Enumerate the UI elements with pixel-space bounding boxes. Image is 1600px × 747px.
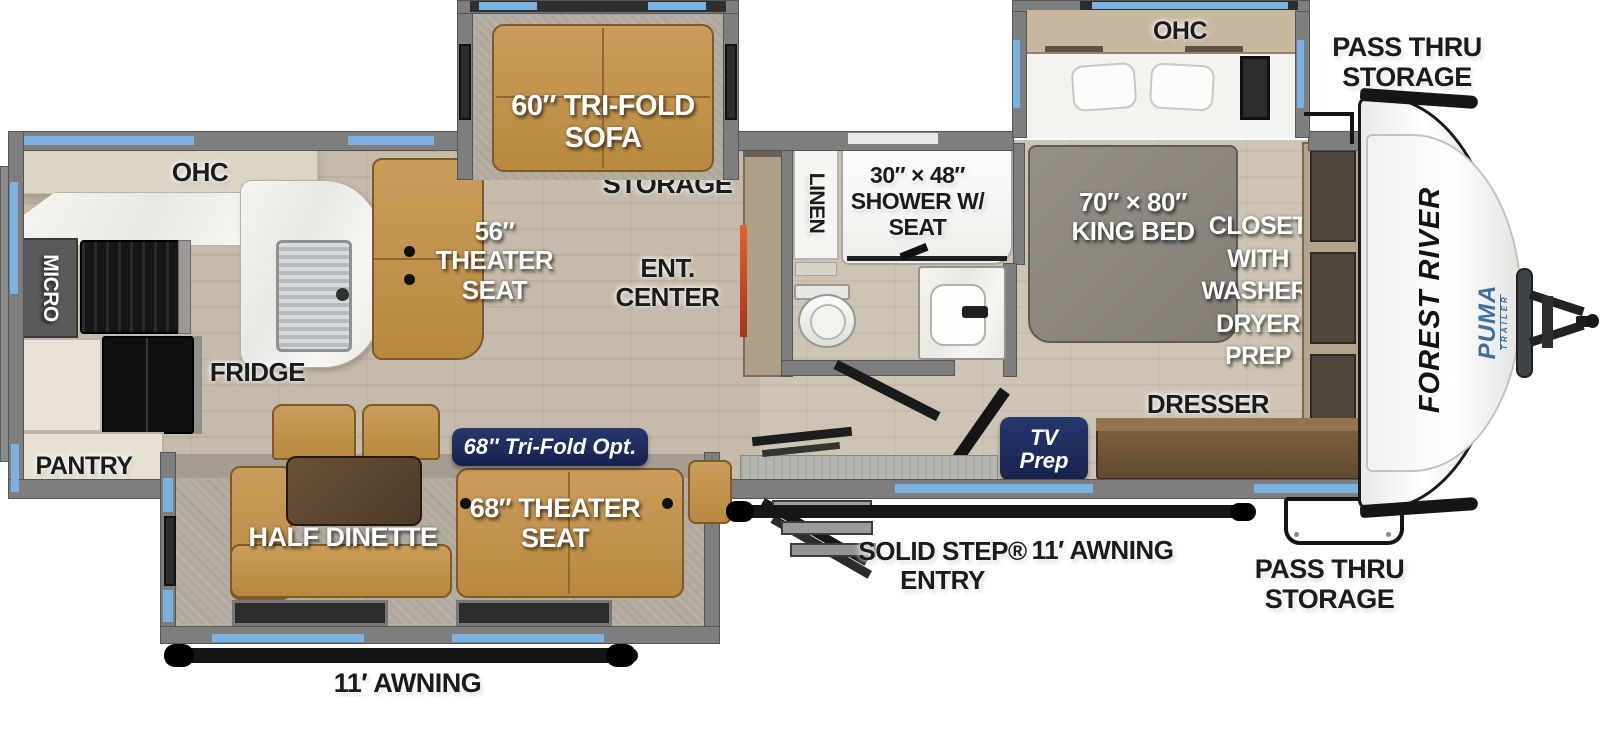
bed-slide-accent-right (1297, 40, 1304, 108)
linen-label: LINEN (802, 148, 830, 258)
dinette-accent-bottom-1 (212, 634, 364, 642)
dinette-accent-bottom-2 (452, 634, 604, 642)
closet-shelf-2 (1310, 252, 1356, 344)
sofa-slide-accent-1 (479, 2, 537, 10)
hitch-mount (1516, 268, 1533, 378)
awning-bottom-cap-left (164, 644, 194, 667)
closet-label: CLOSETWITHWASHER/DRYERPREP (1198, 204, 1318, 379)
wall-bottom-left (8, 479, 164, 499)
ent-center-label: ENT.CENTER (600, 250, 735, 316)
kitchen-cabinet-left (22, 338, 102, 432)
toilet-seat (810, 304, 846, 340)
theater-seat-56-cupholder-1 (404, 246, 415, 257)
bath-wall-left (781, 143, 793, 377)
bedroom-ohc-shelf-1 (1045, 46, 1103, 52)
theater-seat-56-label: 56″THEATERSEAT (432, 206, 557, 316)
dinette-window-bottom-1 (232, 600, 388, 626)
window-accent-bottom-1 (895, 484, 1093, 493)
sink-faucet-icon (336, 288, 349, 301)
rv-floorplan: MICRO OHC FRIDGE PANTRY 56″THEATERSEAT S… (0, 0, 1600, 747)
theater-seat-56-cupholder-2 (404, 274, 415, 285)
window-accent-top-2 (348, 136, 434, 145)
shower-glass (847, 256, 1007, 261)
window-accent-bottom-2 (1254, 484, 1364, 493)
tri-fold-sofa-label: 60″ TRI-FOLDSOFA (478, 86, 728, 158)
dresser-label: DRESSER (1118, 390, 1298, 420)
tv-prep-badge: TVPrep (1000, 417, 1088, 481)
fridge-icon (102, 336, 194, 434)
tri-fold-opt-badge: 68″ Tri-Fold Opt. (452, 428, 648, 466)
window-accent-rear (10, 182, 18, 294)
awning-right-label: 11′ AWNING (1030, 536, 1175, 566)
hitch-coupler-knob (1586, 314, 1599, 328)
solid-step-entry-label: SOLID STEP®ENTRY (860, 534, 1025, 598)
awning-right-cap-right (1230, 503, 1256, 521)
shower-label: 30″ × 48″SHOWER W/SEAT (830, 152, 1005, 252)
fridge-door-split (146, 338, 148, 432)
skylight (848, 133, 938, 144)
fireplace-icon (740, 225, 747, 337)
sofa-slide-accent-2 (648, 2, 706, 10)
bath-wall-right-upper (1013, 143, 1025, 265)
puma-sub-text: TRAILER (1500, 294, 1509, 350)
pass-thru-door-screw-2 (1386, 532, 1391, 537)
pass-thru-door-screw-1 (1294, 532, 1299, 537)
pillow-1 (1070, 62, 1137, 112)
bedroom-ohc-label: OHC (1115, 16, 1245, 46)
bed-slide-accent-left (1013, 40, 1020, 108)
bed-slide-accent-top (1092, 2, 1288, 9)
king-bed-label: 70″ × 80″KING BED (1058, 182, 1208, 252)
hitch-jack-post (1542, 296, 1553, 348)
awning-bottom-label: 11′ AWNING (330, 666, 485, 700)
awning-right-cap-left (726, 501, 754, 522)
bath-faucet-icon (962, 306, 988, 318)
sofa-slide-window-left (459, 44, 471, 120)
dinette-accent-left-2 (163, 590, 173, 622)
ent-center-cabinet (743, 145, 785, 377)
dinette-seat-back-1 (272, 404, 356, 460)
bedroom-ohc-shelf-2 (1185, 46, 1243, 52)
kitchen-ohc-label: OHC (150, 158, 250, 188)
closet-shelf-1 (1310, 150, 1356, 242)
stove-control-panel (178, 240, 191, 334)
puma-logo: PUMA TRAILER (1472, 252, 1512, 392)
awning-right-rod (732, 505, 1254, 518)
dinette-window-bottom-2 (456, 600, 612, 626)
dinette-table (286, 456, 422, 526)
slide-arm-v (1350, 112, 1354, 144)
bed-slide-window-right (1240, 56, 1270, 120)
bath-wall-bottom (781, 360, 955, 376)
slide-arm-h (1304, 112, 1354, 116)
forest-river-logo: FOREST RIVER (1414, 140, 1450, 460)
theater-seat-68-label: 68″ THEATERSEAT (470, 490, 640, 556)
linen-drawer (795, 262, 837, 276)
solid-step-tread-2 (781, 521, 873, 535)
micro-label: MICRO (35, 238, 65, 338)
pantry-label: PANTRY (24, 452, 144, 480)
window-accent-top-1 (24, 136, 194, 145)
pass-thru-top-label: PASS THRUSTORAGE (1322, 30, 1492, 94)
awning-bottom-rod (168, 648, 638, 663)
dinette-accent-left-1 (163, 478, 173, 512)
half-dinette-label: HALF DINETTE (248, 522, 438, 552)
hitch-bar-top (1529, 290, 1585, 316)
dinette-seat-back-2 (362, 404, 440, 460)
puma-model-text: PUMA (1476, 285, 1500, 360)
stove-icon (80, 240, 190, 334)
pass-thru-bottom-label: PASS THRUSTORAGE (1252, 552, 1407, 616)
dinette-window-left (164, 516, 176, 586)
awning-bottom-cap-right (606, 644, 636, 667)
pillow-2 (1149, 62, 1215, 111)
fridge-label: FRIDGE (200, 358, 315, 388)
window-accent-rear-2 (11, 444, 19, 492)
theater-seat-68-cupholder-2 (662, 498, 673, 509)
